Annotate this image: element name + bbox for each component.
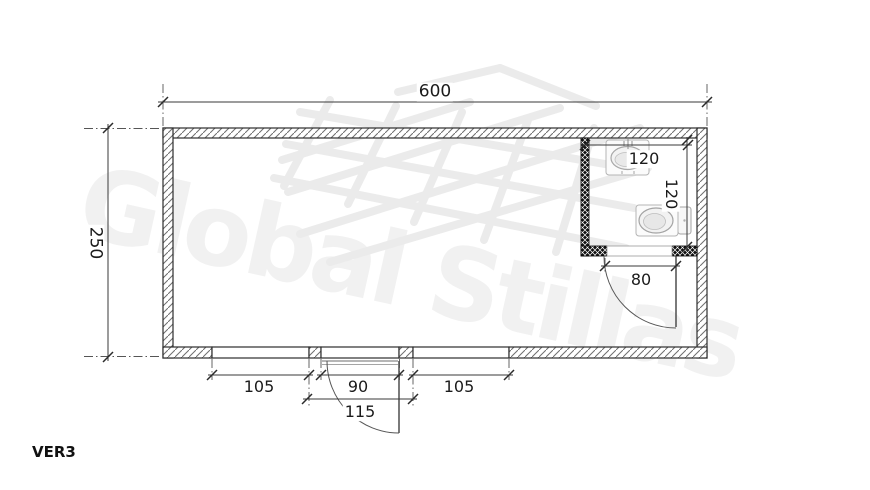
version-label: VER3 [32, 443, 76, 461]
dim-label-bathroom-depth: 120 [662, 177, 680, 212]
plan-drawing-svg [0, 0, 870, 490]
bathroom-door-swing [604, 256, 676, 328]
bottom-wall-segment [163, 347, 212, 358]
right-window-opening [413, 347, 509, 358]
entrance-door-opening [321, 347, 399, 358]
left-window-opening [212, 347, 309, 358]
top-wall [163, 128, 707, 138]
dim-label-right-window: 105 [442, 378, 477, 396]
dim-label-entrance-opening: 115 [343, 403, 378, 421]
floor-plan-canvas: Global Stillas [0, 0, 870, 490]
dim-label-overall-depth: 250 [86, 225, 105, 261]
bottom-wall-segment [509, 347, 707, 358]
bathroom-left-wall [581, 138, 589, 256]
right-wall [697, 128, 707, 358]
bathroom-bottom-wall-left [581, 246, 607, 256]
bathroom-door-threshold [607, 246, 672, 256]
bathroom-bottom-wall-right [672, 246, 697, 256]
scaffold-grid-icon [274, 68, 648, 262]
left-wall [163, 128, 173, 358]
bottom-wall-pier [309, 347, 321, 358]
dim-label-entrance-door: 90 [346, 378, 370, 396]
dim-label-overall-width: 600 [417, 83, 453, 102]
entrance-door-swing [322, 361, 399, 433]
bottom-wall-pier [399, 347, 413, 358]
dim-label-bathroom-door: 80 [629, 271, 653, 289]
dim-label-bathroom-width: 120 [627, 150, 662, 168]
dim-label-left-window: 105 [242, 378, 277, 396]
